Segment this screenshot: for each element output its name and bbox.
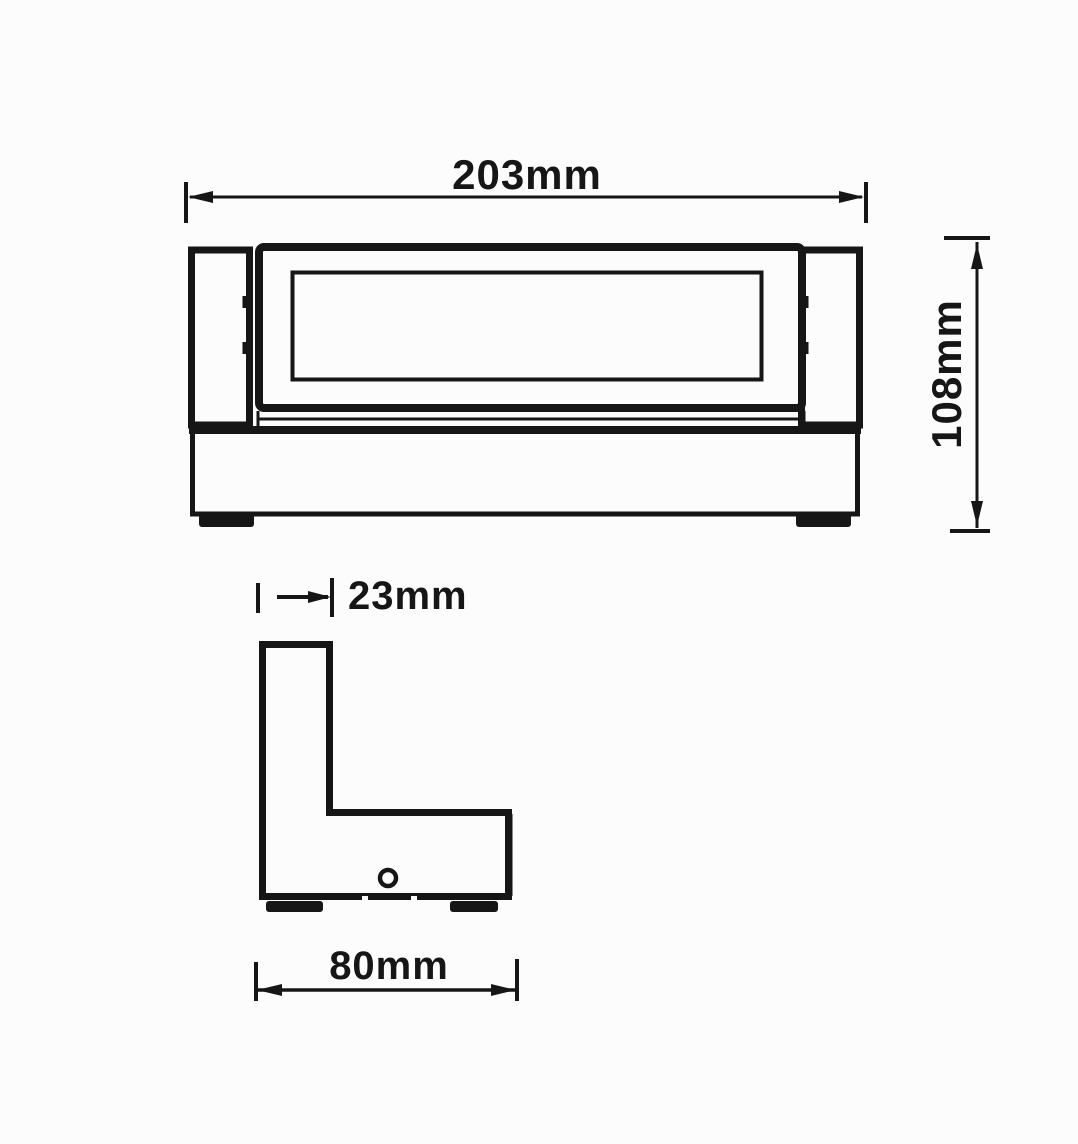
technical-drawing: 203mm 108mm 23mm 80mm [0,0,1078,1144]
width-arrow-right [839,191,864,203]
depth80-dimension-label: 80mm [329,944,449,988]
depth23-dimension-label: 23mm [348,574,468,618]
front-left-tab-notch-lower [243,342,252,354]
side-profile-outline [263,645,509,897]
front-right-foot [796,514,851,527]
front-width-dimension: 203mm [186,151,866,223]
height-arrow-bottom [971,501,983,526]
drawing-canvas: 203mm 108mm 23mm 80mm [0,0,1078,1144]
width-arrow-left [188,191,213,203]
height-dimension-label: 108mm [923,299,970,449]
side-right-foot [450,901,498,912]
height-arrow-top [971,244,983,269]
depth23-arrow-right [308,591,331,603]
depth80-arrow-right [491,984,516,996]
front-left-tab [192,250,250,425]
side-view [263,645,510,913]
side-overall-depth-dimension: 80mm [256,944,517,1001]
side-left-foot [266,901,323,912]
front-right-tab [802,250,860,425]
side-bottom-notch-left [362,896,368,904]
front-left-foot [199,514,254,527]
side-screw-hole-icon [380,870,396,886]
width-dimension-label: 203mm [452,151,602,198]
front-view [189,247,861,527]
side-bottom-notch-right [411,896,417,904]
front-height-dimension: 108mm [923,238,990,531]
side-top-depth-dimension: 23mm [258,574,468,618]
depth80-arrow-left [257,984,282,996]
front-left-tab-notch-upper [243,296,252,308]
front-base-body [193,431,858,514]
front-light-window [293,273,762,380]
